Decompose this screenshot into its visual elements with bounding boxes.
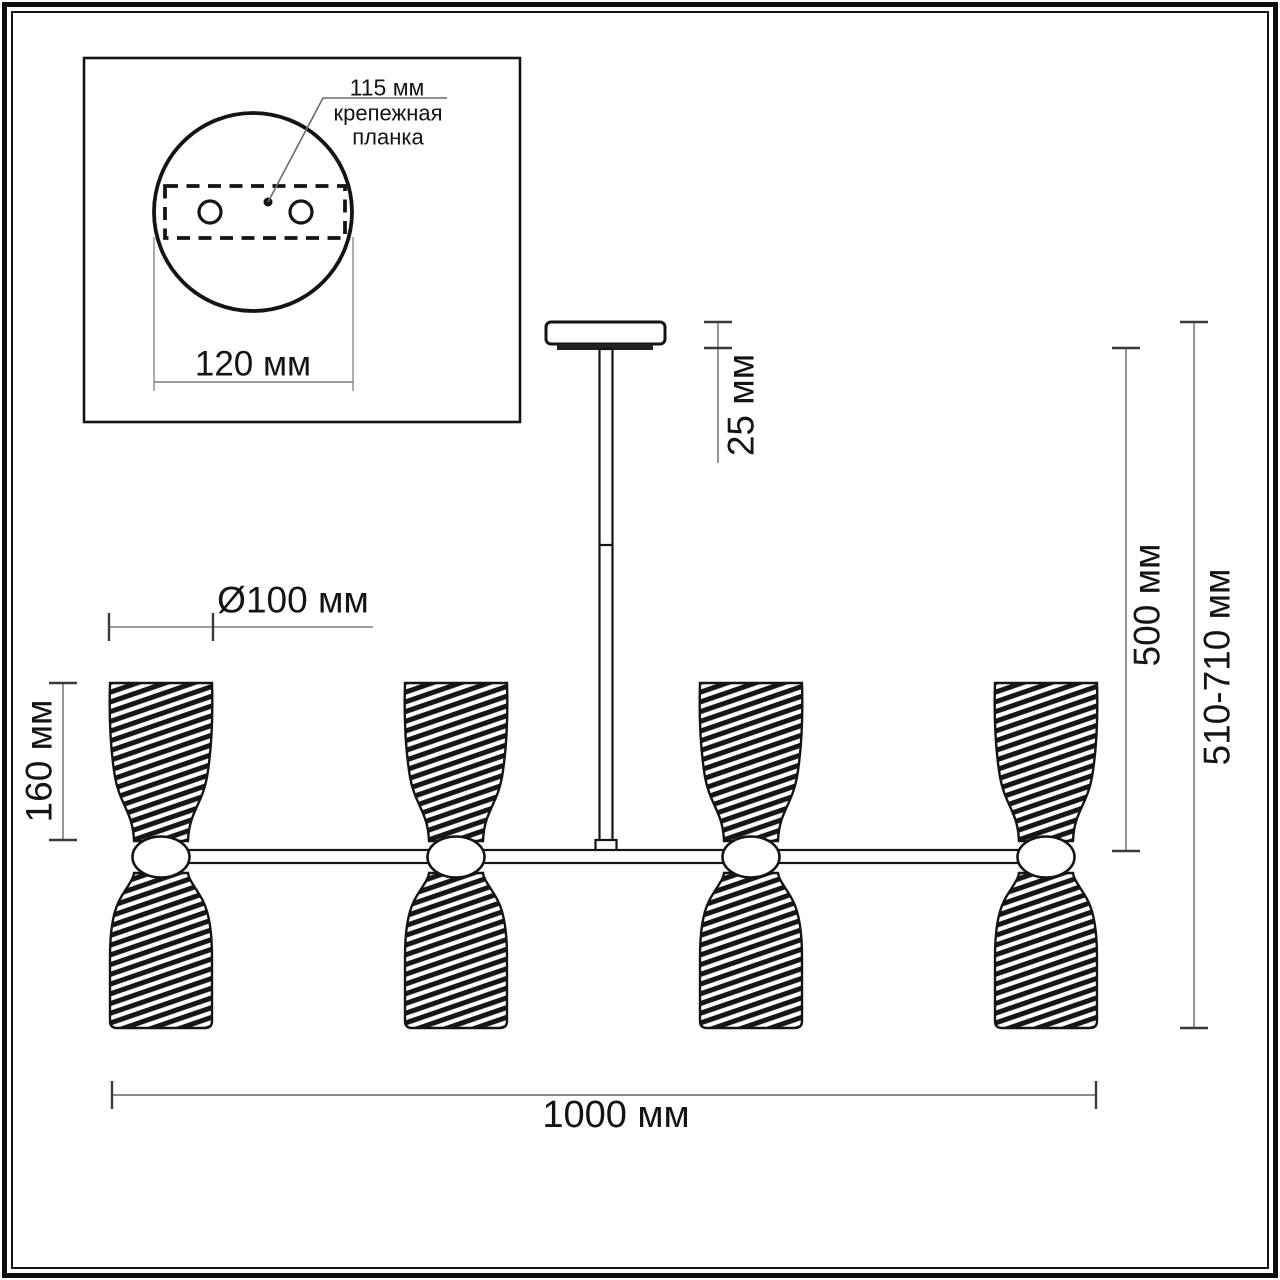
canopy-diameter-label: 120 мм [195,347,311,382]
technical-drawing-page: 115 мм крепежная планка 120 мм Ø100 мм 1… [0,0,1280,1280]
screw-hole-left [199,201,221,223]
total-height-label: 510-710 мм [1199,569,1236,766]
cross-arm [161,850,1046,863]
shade-diameter-label: Ø100 мм [217,582,369,619]
ceiling-canopy [546,322,665,344]
fixture [110,322,1098,1028]
total-width-label: 1000 мм [542,1096,689,1134]
hole-spacing-label: 115 мм [350,77,425,100]
shade-height-label: 160 мм [21,700,58,823]
hanging-rod [600,349,613,841]
screw-hole-right [290,201,312,223]
drawing-linework [0,0,1280,1280]
canopy-height-label: 25 мм [723,354,760,456]
mounting-plate-label: крепежная планка [313,101,463,149]
rod-length-label: 500 мм [1129,544,1166,667]
